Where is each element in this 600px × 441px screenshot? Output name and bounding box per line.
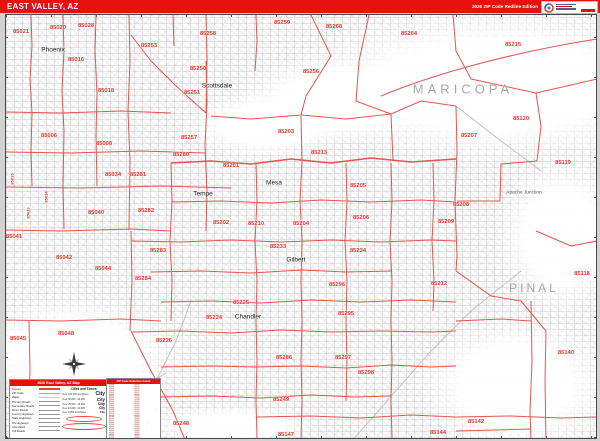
legend-oval-sample [62,423,106,430]
city-size-row: Over 9,999 and Below City [62,410,105,414]
zip-guide-table: 85006 Phoenix 85008 Phoenix 85016 Phoeni… [107,384,160,439]
legend-swatch [39,422,60,423]
title-bar: EAST VALLEY, AZ 2020 ZIP Code Redline Ed… [0,0,600,13]
publisher-logo-text [556,4,576,11]
legend-swatch [39,426,60,427]
legend-box: 2020 East Valley, AZ Map County ZIP Code… [9,379,108,439]
city-size-row: Over 10,000 - 24,999 City [62,406,105,410]
publisher-logo-icon [544,3,555,13]
legend-swatch [39,388,60,390]
legend-symbol-list: County ZIP Code Water Primary Roads [12,387,60,433]
map-page: EAST VALLEY, AZ 2020 ZIP Code Redline Ed… [0,0,600,441]
legend-swatch [39,397,60,398]
legend-swatch [39,393,60,394]
legend-cities-column: Cities and Towns Over 100,000 and Above … [60,387,105,433]
legend-swatch [39,430,60,431]
zip-guide-box: ZIP Code Selection Guide 85006 Phoenix 8… [106,378,161,439]
legend-row: Toll Roads [12,429,60,433]
legend-swatch [39,414,60,415]
left-ticks [6,15,8,438]
publisher-logo [541,1,598,14]
legend-swatch [39,418,60,419]
legend-swatch [39,410,60,411]
zip-guide-row: 85209 Mesa [109,438,133,439]
compass-rose-icon [59,349,89,379]
edition-label: 2020 ZIP Code Redline Edition [472,4,538,9]
legend-swatch [39,405,60,406]
legend-oval-sample [66,416,102,422]
legend-swatch [39,401,60,402]
publisher-logo-bar [581,9,595,12]
top-ticks [6,15,596,17]
map-title: EAST VALLEY, AZ [7,2,78,11]
map-canvas: MARICOPAPINAL PhoenixScottsdaleTempeMesa… [5,14,597,439]
zip-guide-row: 85298 Gilbert [135,438,159,439]
right-ticks [594,15,596,438]
